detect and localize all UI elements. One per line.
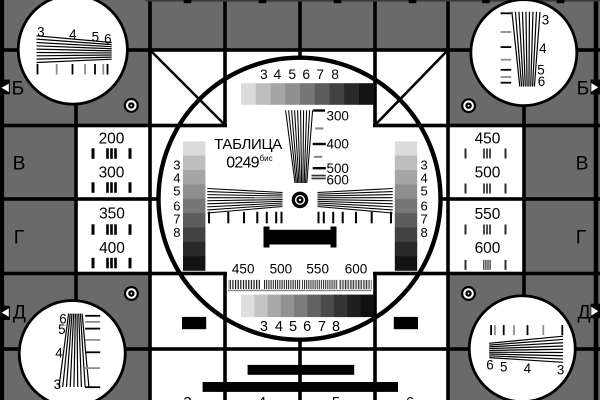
svg-text:400: 400	[99, 240, 125, 257]
svg-text:5: 5	[289, 319, 297, 335]
svg-text:5: 5	[332, 394, 340, 400]
svg-text:6: 6	[538, 74, 545, 89]
svg-text:Б: Б	[12, 78, 25, 99]
svg-text:8: 8	[173, 225, 180, 240]
svg-text:4: 4	[539, 41, 547, 56]
svg-text:5: 5	[421, 184, 428, 199]
svg-text:Д: Д	[577, 302, 590, 323]
svg-text:5: 5	[92, 30, 99, 45]
svg-text:Г: Г	[576, 227, 587, 248]
svg-text:300: 300	[327, 108, 349, 123]
svg-text:5: 5	[500, 359, 507, 374]
svg-text:450: 450	[475, 131, 501, 148]
svg-text:3: 3	[557, 363, 564, 378]
svg-text:550: 550	[306, 261, 329, 276]
svg-text:8: 8	[332, 319, 340, 335]
svg-text:4: 4	[258, 394, 266, 400]
svg-text:3: 3	[542, 12, 549, 27]
svg-text:3: 3	[183, 394, 191, 400]
svg-text:0249: 0249	[226, 155, 259, 172]
svg-text:7: 7	[318, 319, 326, 335]
svg-text:4: 4	[275, 319, 283, 335]
svg-text:500: 500	[475, 165, 501, 182]
svg-text:8: 8	[331, 67, 339, 82]
svg-text:3: 3	[260, 319, 268, 335]
svg-text:Г: Г	[14, 227, 25, 248]
svg-text:5: 5	[173, 184, 180, 199]
svg-text:600: 600	[345, 261, 368, 276]
svg-text:6: 6	[302, 67, 310, 82]
svg-text:4: 4	[273, 67, 281, 82]
svg-text:3: 3	[260, 67, 268, 82]
svg-text:ТАБЛИЦА: ТАБЛИЦА	[214, 136, 282, 153]
svg-text:4: 4	[524, 361, 532, 376]
svg-text:В: В	[576, 153, 589, 174]
svg-text:В: В	[13, 153, 26, 174]
svg-text:6: 6	[406, 394, 414, 400]
svg-text:200: 200	[99, 131, 125, 148]
svg-text:бис: бис	[260, 154, 273, 163]
svg-text:6: 6	[486, 358, 493, 373]
svg-text:6: 6	[303, 319, 311, 335]
svg-text:450: 450	[232, 261, 255, 276]
svg-text:550: 550	[475, 206, 501, 223]
svg-text:Д: Д	[13, 302, 26, 323]
svg-text:7: 7	[316, 67, 324, 82]
svg-text:3: 3	[54, 377, 61, 392]
svg-text:4: 4	[55, 346, 63, 361]
svg-text:350: 350	[99, 206, 125, 223]
svg-text:300: 300	[99, 165, 125, 182]
svg-text:600: 600	[475, 240, 501, 257]
svg-text:400: 400	[327, 137, 349, 152]
svg-text:3: 3	[37, 25, 44, 40]
svg-text:4: 4	[69, 27, 77, 42]
svg-text:500: 500	[270, 261, 293, 276]
svg-text:600: 600	[327, 172, 349, 187]
svg-text:5: 5	[288, 67, 296, 82]
svg-text:5: 5	[58, 322, 65, 337]
svg-text:8: 8	[421, 225, 428, 240]
svg-text:6: 6	[104, 31, 111, 46]
svg-text:Б: Б	[577, 78, 590, 99]
